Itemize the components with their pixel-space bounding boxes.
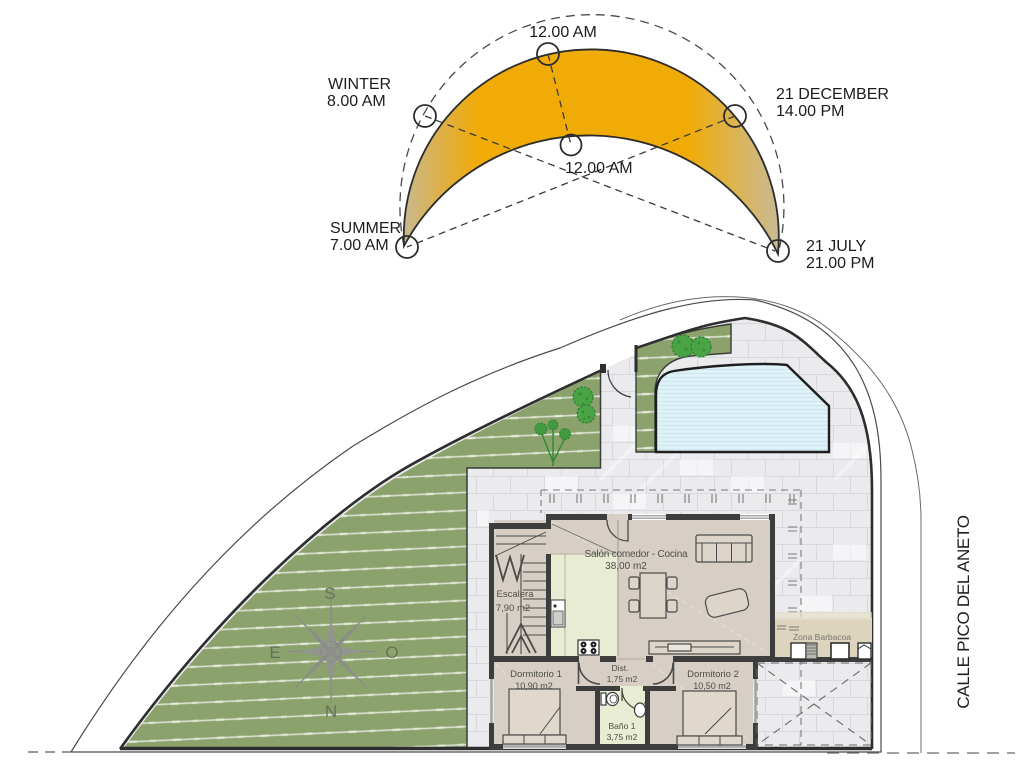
svg-text:Dormitorio 1: Dormitorio 1 — [510, 669, 562, 680]
svg-text:3,75 m2: 3,75 m2 — [607, 732, 638, 742]
svg-text:Salón comedor - Cocina: Salón comedor - Cocina — [585, 549, 689, 560]
svg-text:12.00 AM: 12.00 AM — [565, 160, 633, 177]
svg-text:S: S — [324, 584, 335, 603]
svg-text:21.00 PM: 21.00 PM — [806, 255, 874, 272]
svg-text:N: N — [325, 702, 337, 721]
svg-text:7,90 m2: 7,90 m2 — [496, 603, 530, 614]
svg-text:WINTER: WINTER — [328, 76, 391, 93]
svg-text:38,00 m2: 38,00 m2 — [605, 561, 647, 572]
svg-text:1,75 m2: 1,75 m2 — [607, 674, 638, 684]
svg-text:21 JULY: 21 JULY — [806, 238, 867, 255]
svg-text:21 DECEMBER: 21 DECEMBER — [776, 86, 889, 103]
svg-text:O: O — [385, 643, 398, 662]
svg-text:CALLE PICO DEL ANETO: CALLE PICO DEL ANETO — [954, 515, 973, 708]
svg-text:7.00 AM: 7.00 AM — [330, 237, 389, 254]
svg-text:Zona Barbacoa: Zona Barbacoa — [793, 632, 851, 642]
svg-text:10,90 m2: 10,90 m2 — [515, 681, 553, 691]
svg-text:E: E — [269, 643, 280, 662]
svg-text:8.00 AM: 8.00 AM — [327, 93, 386, 110]
svg-text:12.00 AM: 12.00 AM — [529, 24, 597, 41]
svg-text:14.00 PM: 14.00 PM — [776, 103, 844, 120]
svg-text:Escalera: Escalera — [497, 589, 535, 600]
svg-text:Baño 1: Baño 1 — [609, 721, 636, 731]
svg-text:10,50 m2: 10,50 m2 — [693, 681, 731, 691]
svg-text:Dormitorio 2: Dormitorio 2 — [687, 669, 739, 680]
svg-text:Dist.: Dist. — [612, 663, 629, 673]
svg-text:SUMMER: SUMMER — [330, 220, 401, 237]
